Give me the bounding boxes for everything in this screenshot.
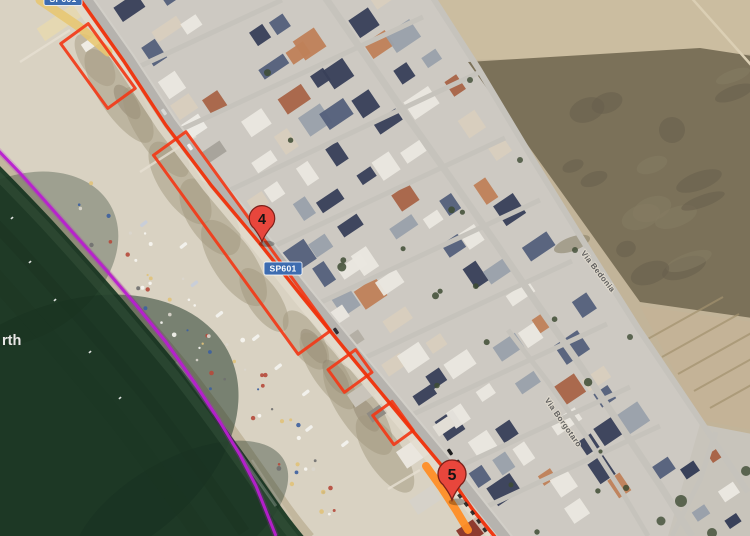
beach-dot (143, 306, 147, 310)
tree (432, 292, 439, 299)
beach-dot (146, 287, 150, 291)
beach-dot (209, 371, 214, 376)
beach-dot (147, 274, 149, 276)
beach-dot (89, 243, 93, 247)
tree (473, 283, 479, 289)
tree (657, 517, 666, 526)
tree (484, 339, 490, 345)
beach-dot (312, 467, 316, 471)
beach-dot (208, 350, 212, 354)
road-badge-sp601: SP601 (264, 262, 302, 275)
beach-dot (207, 334, 211, 338)
beach-dot (280, 419, 284, 423)
beach-dot (193, 304, 196, 307)
tree (627, 334, 633, 340)
beach-dot (226, 343, 229, 346)
badge-text: SP601 (269, 264, 296, 274)
map-viewport: Via Bedonia Via Borgotaro SP601 SP601 4 … (0, 0, 750, 536)
tree (264, 69, 271, 76)
tree (584, 378, 592, 386)
tree (552, 316, 558, 322)
beach-dot (304, 467, 307, 470)
beach-dot (202, 343, 204, 345)
beach-dot (129, 232, 132, 235)
beach-dot (296, 462, 300, 466)
beach-dot (168, 313, 172, 317)
tree (595, 488, 600, 493)
badge-text: SP601 (49, 0, 76, 4)
beach-dot (258, 414, 262, 418)
road-badge-sp601-top: SP601 (44, 0, 82, 6)
beach-dot (289, 418, 292, 421)
tree (460, 210, 465, 215)
beach-dot (168, 298, 172, 302)
beach-dot (277, 466, 282, 471)
beach-dot (149, 277, 153, 281)
tree (401, 246, 406, 251)
marker-number: 5 (448, 467, 457, 484)
tree (509, 482, 514, 487)
beach-dot (148, 282, 151, 285)
beach-dot (261, 384, 265, 388)
tree (448, 206, 455, 213)
tree (675, 495, 687, 507)
beach-dot (271, 408, 273, 410)
beach-dot (290, 482, 294, 486)
beach-dot (109, 240, 113, 244)
beach-dot (321, 490, 326, 495)
beach-dot (328, 513, 331, 516)
beach-dot (314, 459, 317, 462)
beach-dot (144, 232, 146, 234)
beach-dot (244, 369, 246, 371)
tree (288, 138, 293, 143)
beach-dot (296, 423, 300, 427)
beach-dot (297, 436, 301, 440)
beach-dot (107, 214, 111, 218)
beach-dot (209, 387, 212, 390)
beach-dot (257, 388, 259, 390)
tree (534, 529, 539, 534)
tree (623, 485, 629, 491)
beach-dot (136, 286, 140, 290)
beach-dot (149, 242, 153, 246)
beach-dot (295, 471, 299, 475)
beach-dot (126, 252, 130, 256)
beach-dot (223, 378, 226, 381)
map-canvas[interactable]: Via Bedonia Via Borgotaro SP601 SP601 4 … (0, 0, 750, 536)
beach-dot (89, 181, 93, 185)
beach-dot (198, 347, 200, 349)
tree (340, 257, 346, 263)
beach-dot (79, 207, 82, 210)
beach-dot (328, 486, 333, 491)
beach-dot (186, 329, 188, 331)
tree (517, 157, 523, 163)
tree (598, 449, 602, 453)
beach-dot (319, 509, 324, 514)
watermark-partial: rth (2, 333, 21, 349)
beach-dot (160, 321, 163, 324)
tree (467, 77, 473, 83)
beach-dot (172, 333, 177, 338)
beach-dot (233, 360, 236, 363)
marker-number: 4 (258, 212, 266, 228)
beach-dot (78, 203, 81, 206)
beach-dot (188, 299, 191, 302)
beach-dot (182, 278, 185, 281)
beach-dot (134, 259, 137, 262)
tree (572, 247, 578, 253)
beach-dot (196, 359, 199, 362)
beach-dot (333, 509, 336, 512)
beach-dot (240, 338, 245, 343)
tree (337, 263, 346, 272)
beach-dot (251, 416, 255, 420)
tree (434, 383, 440, 389)
beach-dot (278, 463, 281, 466)
beach-dot (141, 286, 145, 290)
tree (438, 289, 443, 294)
beach-dot (260, 373, 264, 377)
